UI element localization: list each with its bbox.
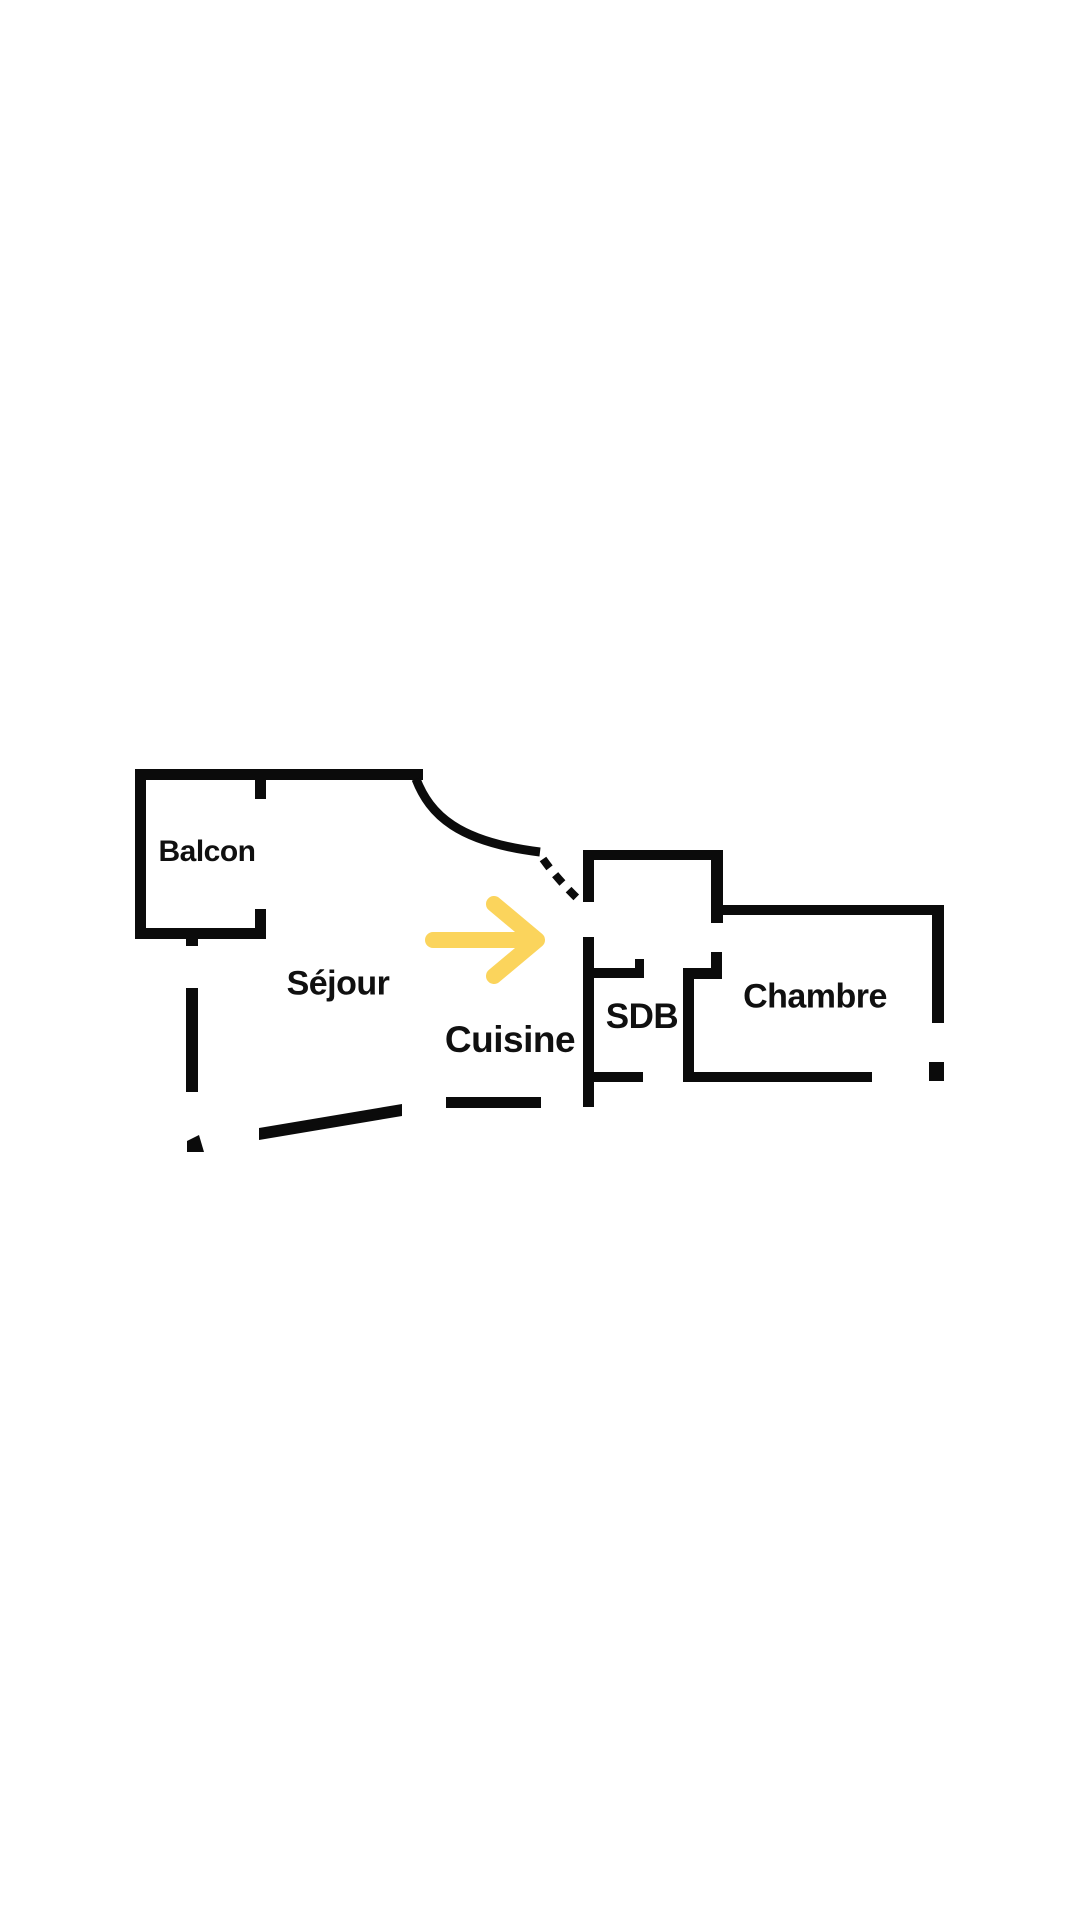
chambre-right-wall — [932, 905, 944, 1023]
entry-right-wall — [711, 850, 723, 923]
room-label-chambre: Chambre — [743, 978, 887, 1017]
door-arcs — [416, 779, 581, 902]
top-wall — [135, 769, 423, 780]
balcon-bottom-wall — [135, 928, 266, 939]
cuisine-bottom-wall — [446, 1097, 541, 1108]
door-swing-arc — [416, 779, 540, 852]
entrance-arrow-icon — [433, 904, 537, 976]
room-label-balcon: Balcon — [158, 835, 255, 869]
sdb-bottom-stub — [583, 1072, 643, 1082]
chambre-right-stub — [929, 1062, 944, 1081]
room-label-sejour: Séjour — [287, 965, 390, 1004]
balcon-door-jamb-top — [255, 780, 266, 799]
balcon-left-wall — [135, 769, 146, 939]
entry-top-wall — [583, 850, 720, 860]
chambre-left-wall — [683, 968, 694, 1082]
balcon-door-jamb-bottom — [255, 909, 266, 928]
room-label-sdb: SDB — [606, 997, 678, 1037]
sejour-diagonal-wall — [259, 1104, 402, 1140]
walls — [135, 769, 944, 1152]
floor-plan-canvas: Balcon Séjour Cuisine SDB Chambre — [0, 0, 1080, 1920]
floor-plan-drawing — [0, 0, 1080, 1920]
sejour-wall-tick — [186, 938, 198, 946]
chambre-door-jamb-v — [711, 952, 722, 969]
chambre-top-wall — [723, 905, 944, 915]
room-label-cuisine: Cuisine — [445, 1019, 575, 1061]
sejour-west-wall — [186, 988, 198, 1092]
sejour-sw-foot — [187, 1135, 204, 1152]
sdb-stub-cap — [635, 959, 644, 978]
chambre-bottom-wall — [693, 1072, 872, 1082]
sdb-top-stub — [583, 968, 643, 978]
chambre-door-jamb-h — [683, 968, 722, 979]
door-swing-dashed-arc — [543, 859, 581, 902]
